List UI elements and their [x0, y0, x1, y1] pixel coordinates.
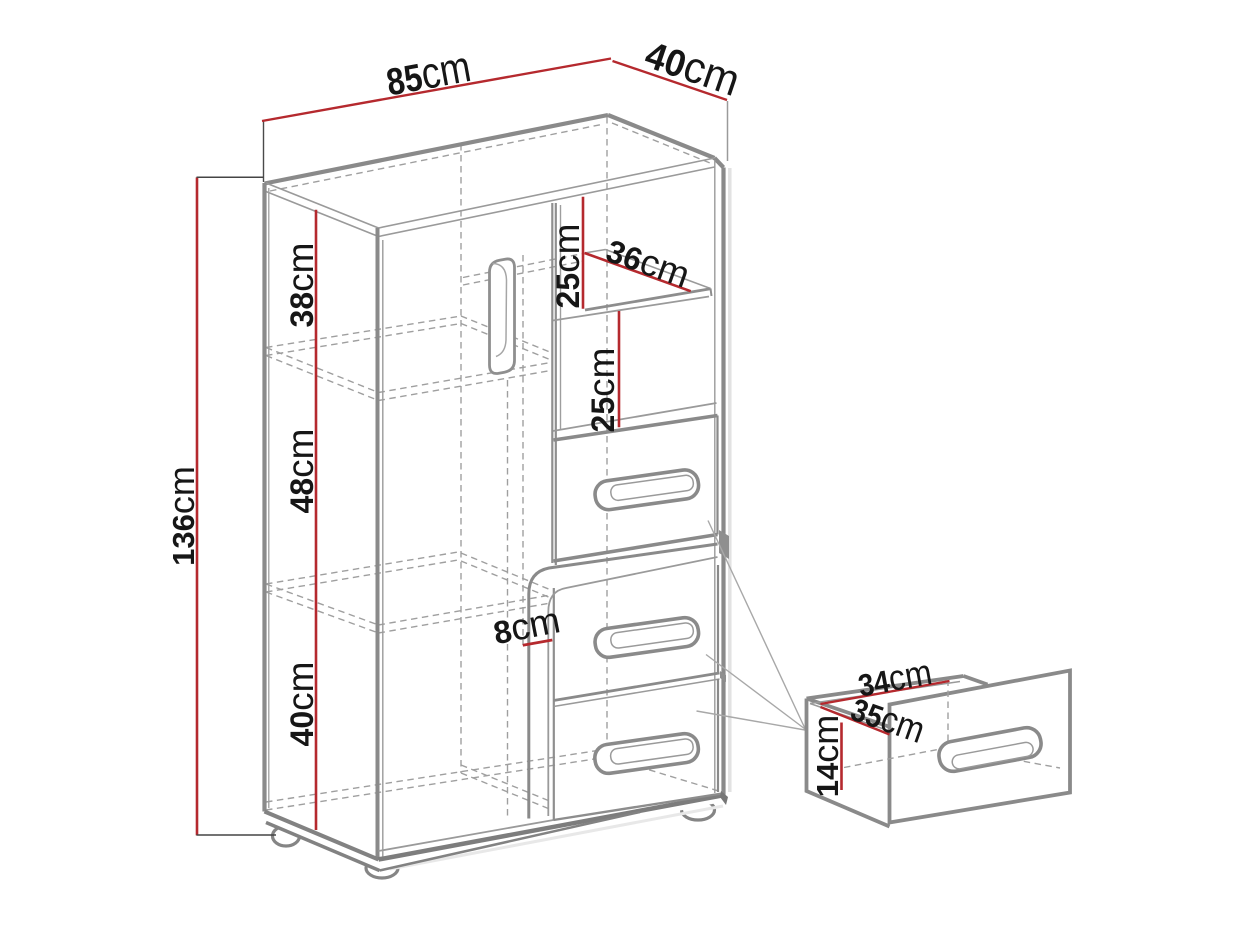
svg-text:8cm: 8cm — [490, 599, 564, 652]
svg-text:85cm: 85cm — [382, 41, 474, 105]
svg-text:40cm: 40cm — [639, 29, 746, 106]
svg-text:38cm: 38cm — [280, 243, 321, 328]
svg-text:40cm: 40cm — [280, 662, 321, 747]
svg-text:25cm: 25cm — [546, 224, 587, 309]
svg-text:14cm: 14cm — [805, 715, 846, 797]
svg-text:48cm: 48cm — [280, 429, 321, 514]
svg-text:136cm: 136cm — [161, 466, 202, 566]
svg-text:25cm: 25cm — [581, 348, 622, 433]
svg-text:36cm: 36cm — [601, 229, 695, 296]
